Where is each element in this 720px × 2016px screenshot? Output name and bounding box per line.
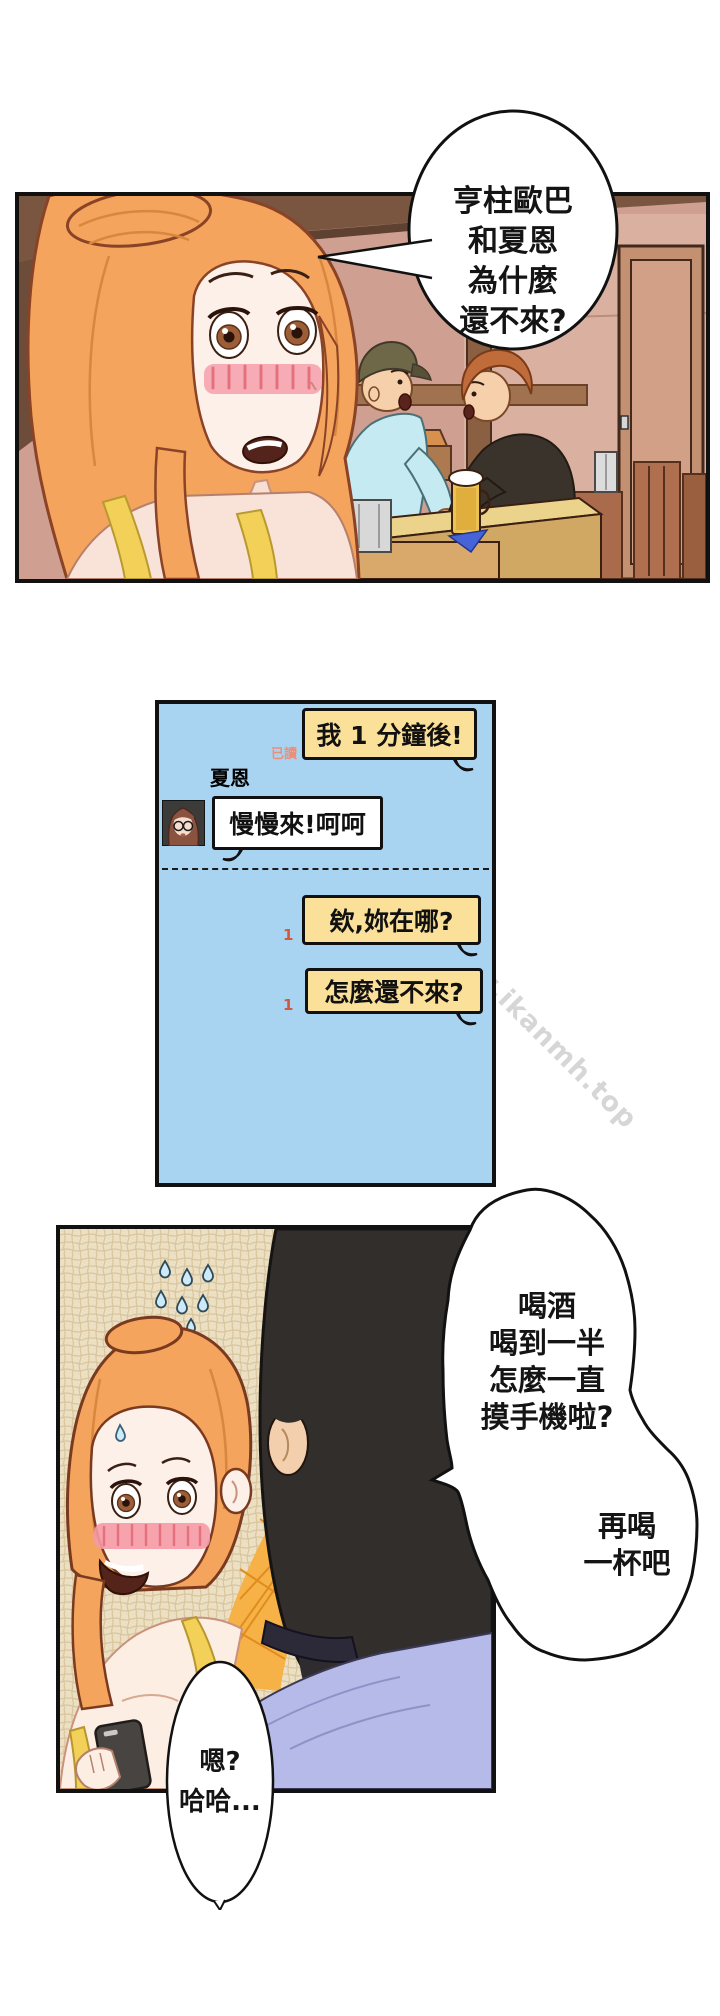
speech-bubble-toast-text: 再喝 一杯吧 [548,1508,706,1582]
message-text: 我 1 分鐘後! [316,716,462,752]
speech-line: 哈哈... [165,1782,275,1822]
speech-line: 為什麼 [428,262,598,302]
message-bubble-sent: 怎麼還不來? [305,968,483,1014]
blush [204,364,322,394]
speech-line: 摸手機啦? [462,1399,632,1436]
bubble-tail [214,1900,225,1910]
bubble-tail [455,942,481,962]
napkin-box [595,452,617,492]
read-receipt-label: 已讀 [233,743,297,762]
unread-badge: 1 [283,926,293,944]
chat-panel: 我 1 分鐘後! 已讀 夏恩 慢慢來!呵呵 欸,妳在哪? 1 怎麼還不來? 1 [155,700,496,1187]
speech-line: 還不來? [428,302,598,342]
speech-line: 喝到一半 [462,1325,632,1362]
bubble-tail [219,847,245,867]
speech-bubble-drink-text: 喝酒 喝到一半 怎麼一直 摸手機啦? [462,1288,632,1436]
speech-line: 嗯? [165,1742,275,1782]
girl-hand [76,1748,120,1789]
speech-line: 再喝 [548,1508,706,1545]
contact-name: 夏恩 [210,762,250,791]
unread-badge: 1 [283,996,293,1014]
speech-bubble-1-text: 亨柱歐巴 和夏恩 為什麼 還不來? [428,182,598,342]
comic-page: { "colors": { "page_bg": "#ffffff", "pan… [0,0,720,2016]
wood-chairs [634,462,706,579]
bubble-tail [454,1011,480,1031]
bubble-tail [318,240,432,278]
speech-line: 亨柱歐巴 [428,182,598,222]
message-bubble-received: 慢慢來!呵呵 [212,796,383,850]
message-text: 怎麼還不來? [324,973,464,1009]
speech-bubble-reply-text: 嗯? 哈哈... [165,1742,275,1822]
message-text: 欸,妳在哪? [330,902,454,938]
contact-avatar [162,800,205,846]
message-bubble-sent: 欸,妳在哪? [302,895,481,945]
bubble-tail [451,757,477,777]
speech-line: 怎麼一直 [462,1362,632,1399]
speech-line: 一杯吧 [548,1545,706,1582]
open-mouth [399,394,411,410]
message-text: 慢慢來!呵呵 [229,805,365,841]
girl-face [91,1407,216,1587]
dashed-divider [162,868,489,870]
message-bubble-sent: 我 1 分鐘後! [302,708,477,760]
blush [94,1523,210,1549]
speech-line: 喝酒 [462,1288,632,1325]
speech-line: 和夏恩 [428,222,598,262]
